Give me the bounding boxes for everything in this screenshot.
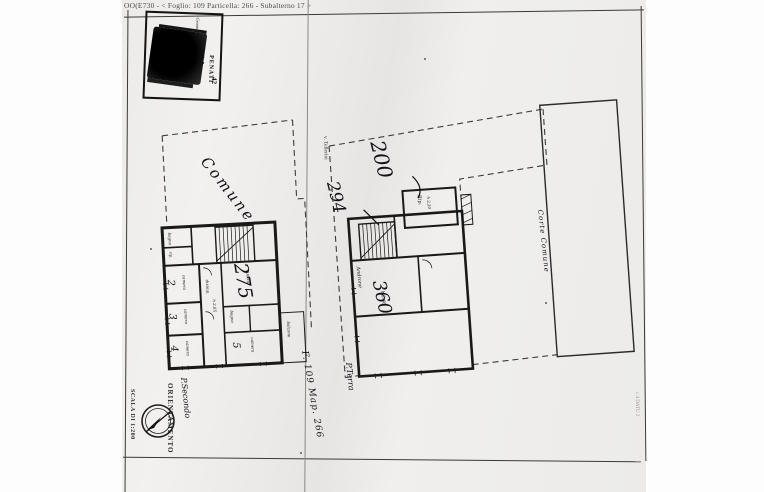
page-bottom-edge [123, 457, 641, 463]
height-285-label: h 2.85 [212, 299, 218, 312]
balcony-label: balcone [286, 321, 292, 337]
kitchen-label: cucina [244, 269, 250, 284]
storage-label: Rip. [416, 195, 423, 206]
stamp-number-text: 42 [210, 77, 218, 84]
room5-number: 5 [230, 342, 241, 349]
room5-label: camera [250, 337, 256, 352]
second-floor-plan: Comune 275 2 camera 3 camera 4 camera 5 … [151, 106, 325, 384]
bath-mid-label: bagno [229, 310, 235, 323]
room3-label: camera [183, 309, 189, 324]
room4-label: camera [185, 341, 191, 356]
scan-speck [424, 58, 426, 60]
scanned-cadastral-sheet: OO(E730 - < Foglio: 109 Particella: 266 … [0, 0, 764, 492]
sheet-header: OO(E730 - < Foglio: 109 Particella: 266 … [124, 1, 311, 10]
room2-label: camera [181, 275, 187, 290]
ink-stamp: Geometri N A PENATI 42 [142, 11, 223, 102]
edge-note: c 4 DATU 2 [634, 392, 639, 416]
scale-label: SCALA DI 1:200 [129, 389, 135, 440]
scan-speck [150, 248, 152, 250]
stamp-org-text: Geometri [195, 17, 201, 34]
street-name: v. Tellerini [322, 136, 329, 160]
ground-floor-plan: 200 294 360 Corte Comune Rip. h 2.20 And… [312, 80, 642, 401]
storage-top-label: rip. [168, 251, 173, 258]
stamp-na-text: N A [197, 52, 206, 65]
second-floor-label: P.Secondo [179, 377, 192, 419]
page-right-edge [641, 6, 647, 461]
scan-speck [545, 302, 547, 304]
bath-top-label: bagno [167, 232, 173, 245]
compass-rose [139, 402, 177, 440]
hall-label: disimp. [205, 280, 211, 295]
room4-number: 4 [168, 345, 179, 352]
compass-needle [147, 417, 161, 430]
room3-number: 3 [167, 313, 178, 320]
ground-floor-linework [312, 80, 642, 401]
paper-sheet: OO(E730 - < Foglio: 109 Particella: 266 … [122, 0, 646, 492]
scan-speck [300, 452, 302, 454]
room2-number: 2 [165, 279, 176, 286]
